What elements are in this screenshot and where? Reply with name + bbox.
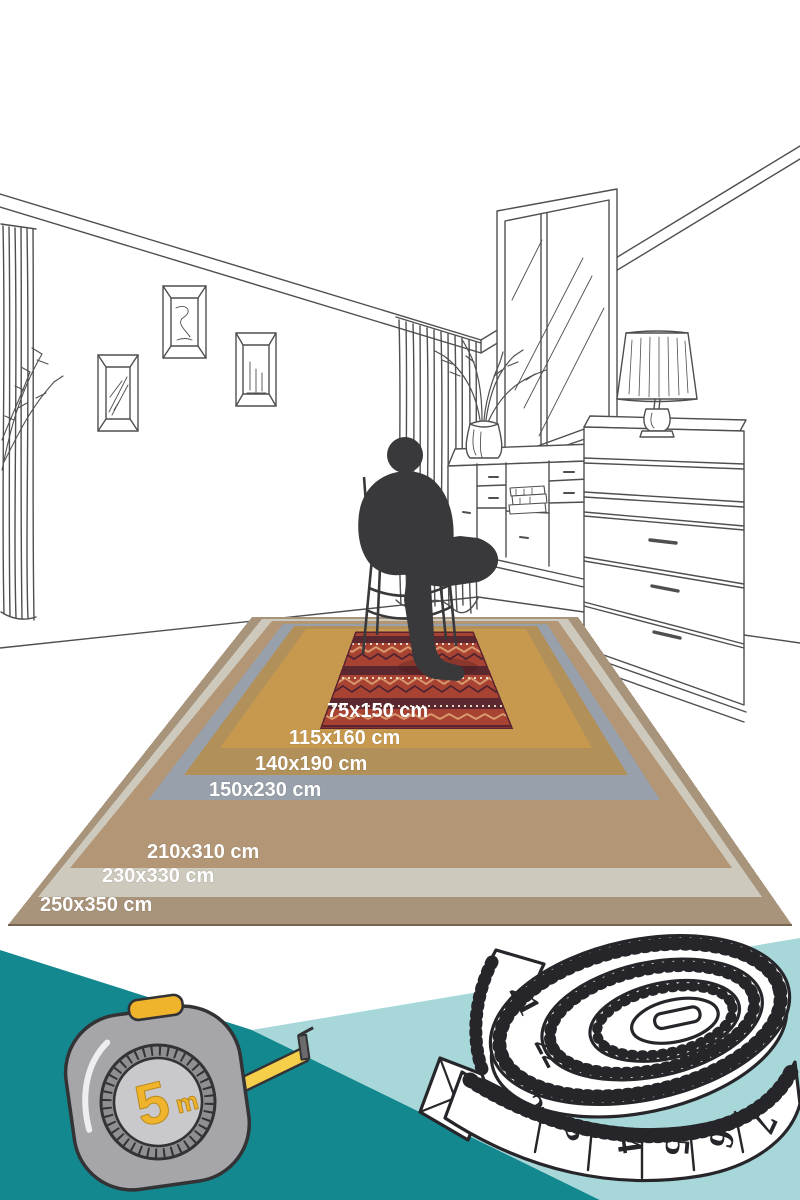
rug-size-label-210x310: 210x310 cm [147, 841, 259, 863]
rug-size-label-115x160: 115x160 cm [289, 727, 400, 749]
rug-size-label-230x330: 230x330 cm [102, 865, 214, 887]
illustration-svg: 75x150 cm 115x160 cm 140x190 cm 150x230 … [0, 0, 800, 1200]
ceiling-molding [0, 146, 800, 353]
rug-size-label-75x150: 75x150 cm [327, 700, 428, 722]
rug-size-label-150x230: 150x230 cm [209, 779, 321, 801]
picture-frame-right [236, 333, 276, 406]
left-curtain [1, 224, 36, 620]
picture-frame-left [98, 355, 138, 431]
sewing-tape-number-5: 5 [657, 1137, 697, 1158]
rug-size-label-140x190: 140x190 cm [255, 753, 367, 775]
books [509, 486, 547, 514]
picture-frame-middle [163, 286, 206, 358]
rug-size-guide-infographic: 75x150 cm 115x160 cm 140x190 cm 150x230 … [0, 0, 800, 1200]
rug-size-label-250x350: 250x350 cm [40, 894, 152, 916]
